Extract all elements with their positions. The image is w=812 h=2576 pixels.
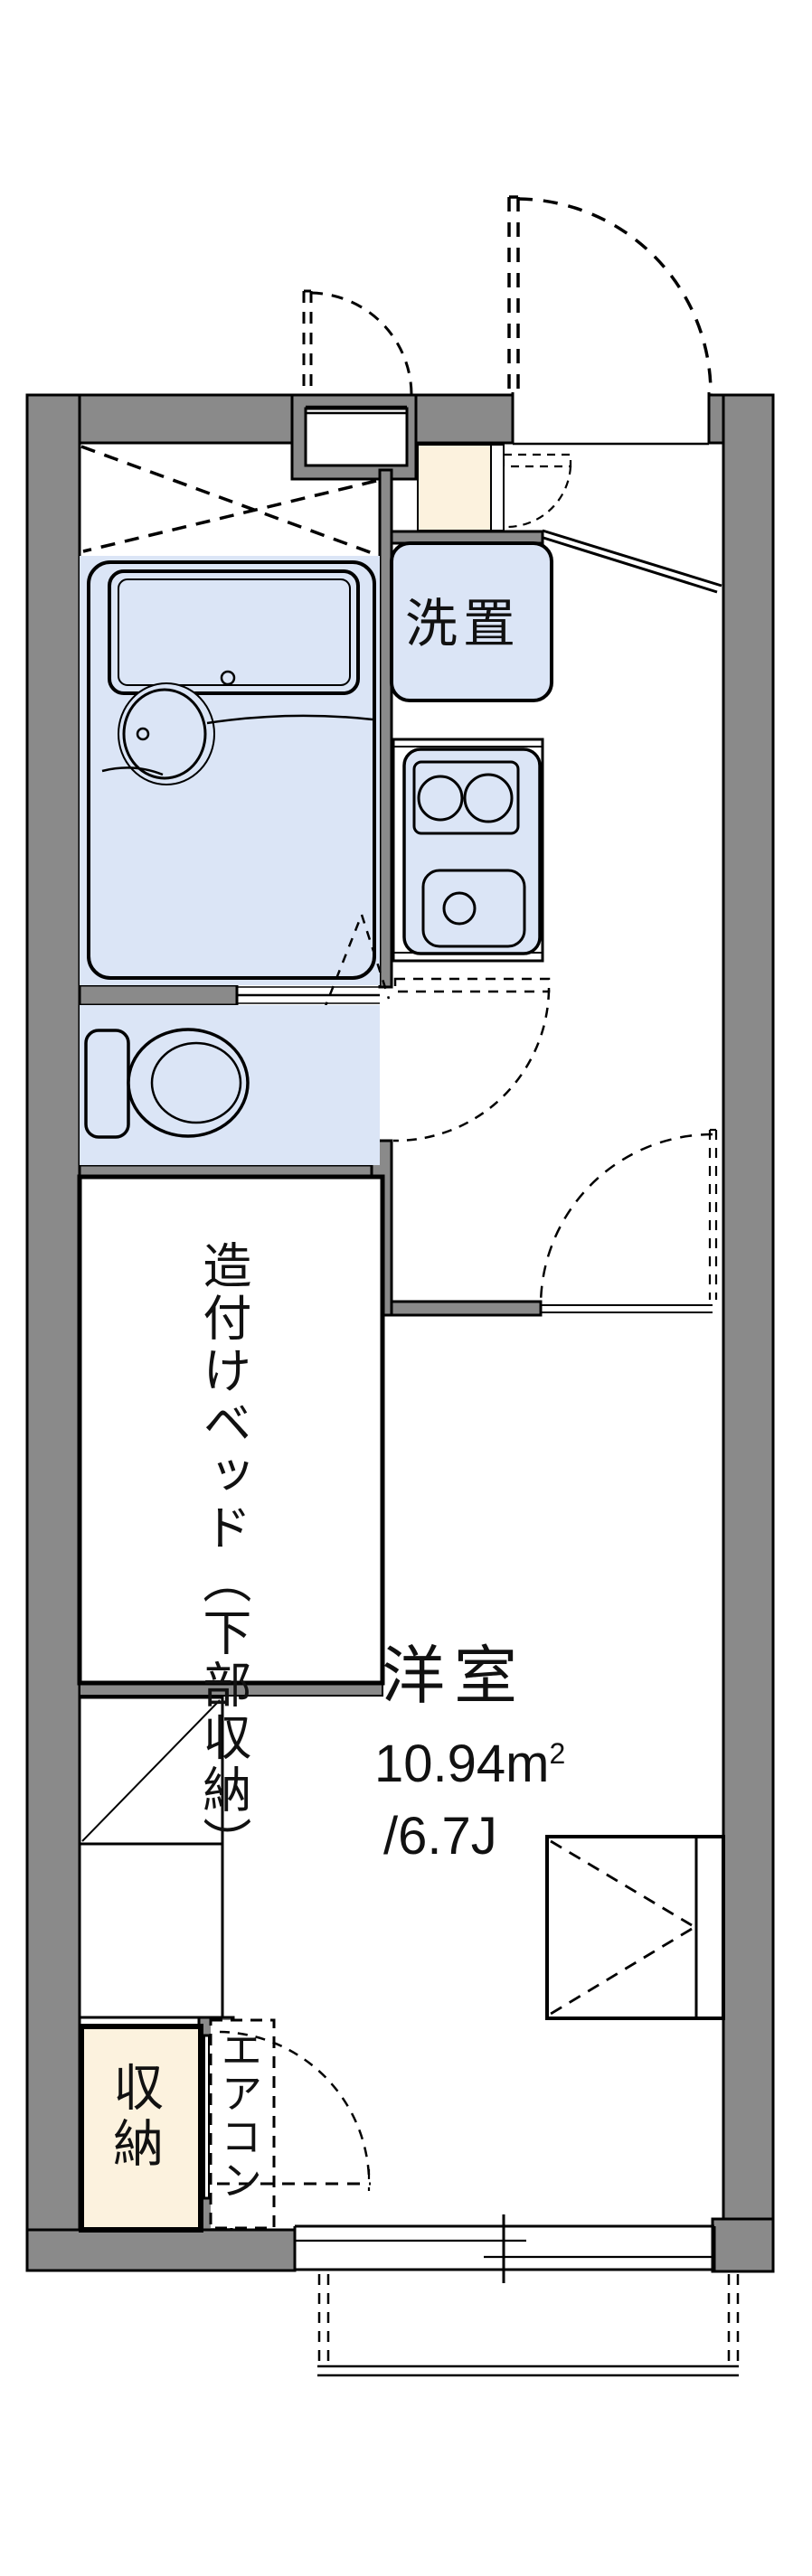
- x-line-2: [83, 481, 376, 551]
- sink-drain: [444, 893, 475, 924]
- entrance-opening: [513, 392, 709, 444]
- label-closet: 収納: [107, 2061, 163, 2214]
- room-door: [541, 1130, 716, 1312]
- hall-door: [393, 979, 549, 1141]
- balcony: [317, 2274, 739, 2375]
- floorplan-page: 洗置 造付けベッド（下部収納） 洋室 10.94m2 /6.7J 収納 エアコン: [0, 0, 812, 2576]
- burner-right: [465, 775, 512, 822]
- wall-left: [27, 395, 80, 2270]
- bathroom: [80, 556, 389, 1011]
- label-laundry-space: 洗置: [405, 581, 521, 657]
- wall-bath-toilet-partition: [80, 985, 237, 1005]
- genkan-step: [491, 445, 504, 531]
- label-room-name: 洋室: [382, 1625, 526, 1716]
- burner-left: [419, 776, 462, 820]
- bottom-window: [295, 2214, 714, 2283]
- wall-bottom-right-corner: [713, 2219, 773, 2271]
- label-room-area: 10.94m2: [374, 1734, 565, 1794]
- small-door-swing: [304, 291, 411, 394]
- entrance-inner-swing: [504, 455, 571, 527]
- wall-corridor-room: [392, 1302, 541, 1315]
- label-built-in-bed: 造付けベッド（下部収納）: [192, 1240, 251, 1674]
- shelf-lower: [80, 1844, 222, 2017]
- basin-faucet: [137, 729, 148, 739]
- genkan-floor: [418, 445, 491, 531]
- bathtub-drain: [222, 672, 234, 684]
- toilet-tank: [86, 1030, 128, 1137]
- room-area-superscript: 2: [549, 1737, 565, 1770]
- room-door-arc: [541, 1134, 713, 1306]
- diagonal-partition: [543, 531, 722, 592]
- wall-right: [723, 395, 773, 2271]
- genkan: [418, 445, 504, 531]
- basin: [124, 690, 205, 778]
- wall-bath-right: [380, 470, 392, 987]
- kitchen: [393, 739, 543, 961]
- label-aircon: エアコン: [217, 2028, 260, 2232]
- label-room-tatami: /6.7J: [383, 1806, 497, 1866]
- entrance-door-swing: [509, 197, 711, 394]
- hall-door-arc: [393, 990, 549, 1141]
- bay-window: [547, 1837, 723, 2018]
- toilet-room: [80, 1005, 380, 1165]
- entry-niche: [306, 409, 407, 465]
- room-area-value: 10.94m: [374, 1735, 549, 1793]
- toilet-bowl: [128, 1029, 248, 1136]
- wall-top-mid: [416, 395, 513, 443]
- hall-door-leaf: [395, 979, 549, 992]
- bath-toilet-door: [237, 987, 380, 1003]
- wall-bottom-left: [27, 2230, 295, 2270]
